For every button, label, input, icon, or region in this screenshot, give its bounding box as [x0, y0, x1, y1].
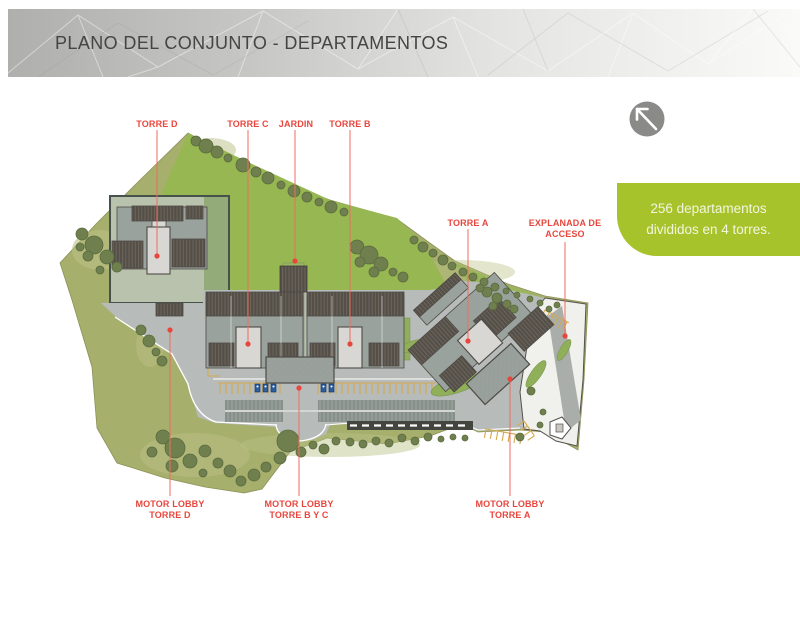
- label-torre-d: TORRE D: [107, 119, 207, 130]
- label-motor-lobby-d: MOTOR LOBBY TORRE D: [120, 499, 220, 521]
- label-motor-lobby-a: MOTOR LOBBY TORRE A: [460, 499, 560, 521]
- label-explanada: EXPLANADA DE ACCESO: [515, 218, 615, 240]
- label-motor-lobby-bc: MOTOR LOBBY TORRE B Y C: [249, 499, 349, 521]
- slide: { "slide": { "title": "PLANO DEL CONJUNT…: [0, 0, 800, 617]
- label-torre-a: TORRE A: [418, 218, 518, 229]
- site-plan: [0, 0, 800, 617]
- motor-lobby-bc-canopy: [266, 357, 334, 383]
- label-torre-b: TORRE B: [300, 119, 400, 130]
